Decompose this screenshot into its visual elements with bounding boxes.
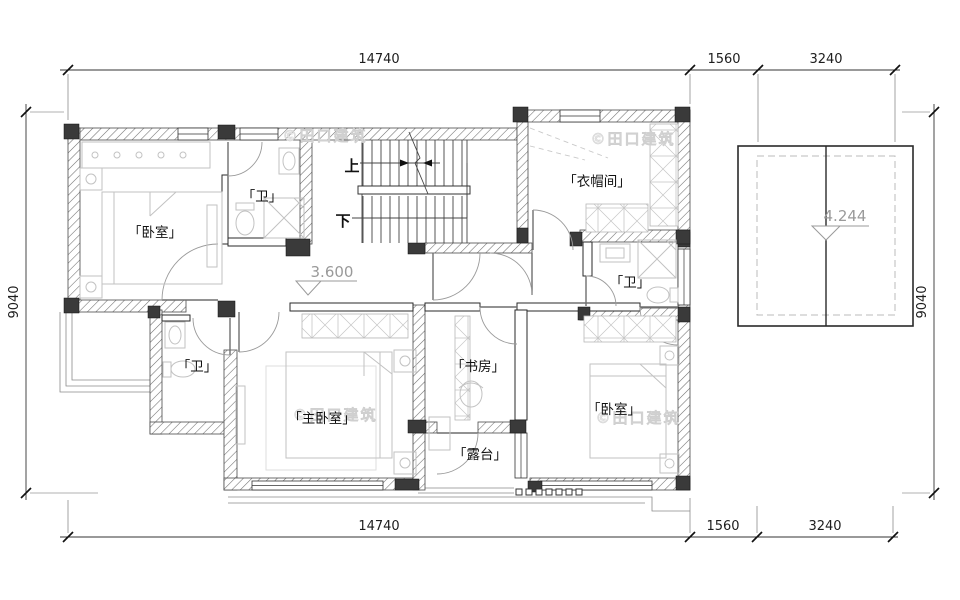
dim-left-9040: 9040 — [7, 285, 22, 318]
window — [240, 128, 278, 140]
stair-up-label: 上 — [344, 157, 359, 175]
dim-right-9040: 9040 — [915, 285, 930, 318]
window — [678, 249, 690, 305]
room-label-bedroom-bottom-right: 「卧室」 — [587, 401, 641, 418]
bedroom-top-left-furniture — [80, 142, 222, 298]
room-label-bedroom-top-left: 「卧室」 — [128, 224, 182, 241]
dim-top-3240: 3240 — [809, 52, 842, 67]
dim-bottom-14740: 14740 — [358, 519, 399, 534]
door — [193, 318, 230, 355]
door — [228, 142, 262, 176]
floor-elevation-value: 3.600 — [311, 263, 354, 281]
roof-elevation-value: 4.244 — [824, 207, 867, 225]
roof-plan: 4.244 — [738, 146, 913, 326]
room-label-study: 「书房」 — [451, 359, 505, 375]
floor-elevation-marker: 3.600 — [296, 263, 357, 295]
dim-top-1560: 1560 — [707, 52, 740, 67]
door — [239, 312, 279, 352]
window — [178, 128, 208, 140]
watermark-text: ©田口建筑 — [590, 130, 675, 148]
window — [560, 110, 600, 122]
watermark-text: ©田口建筑 — [282, 127, 367, 145]
dim-bottom-3240: 3240 — [808, 519, 841, 534]
stair-down-label: 下 — [335, 212, 350, 230]
door — [433, 253, 480, 300]
door — [162, 244, 218, 300]
room-label-cloakroom: 「衣帽间」 — [563, 174, 631, 190]
bath-right-fixtures — [600, 240, 678, 303]
exterior-walls — [68, 110, 690, 490]
master-bedroom-furniture — [236, 314, 416, 474]
dim-top-14740: 14740 — [358, 52, 399, 67]
window — [515, 433, 527, 478]
room-label-terrace: 「露台」 — [453, 447, 507, 463]
door — [490, 253, 532, 295]
window — [252, 481, 383, 490]
room-label-bath-left: 「卫」 — [177, 359, 218, 375]
door — [480, 307, 517, 344]
dim-bottom-1560: 1560 — [706, 519, 739, 534]
room-label-bath-top: 「卫」 — [242, 189, 283, 205]
floor-plan-drawing: 14740 1560 3240 14740 1560 3240 9040 904… — [0, 0, 960, 600]
room-label-bath-right: 「卫」 — [610, 275, 651, 291]
room-label-master-bedroom: 「主卧室」 — [288, 410, 356, 427]
floor-plan-page: 14740 1560 3240 14740 1560 3240 9040 904… — [0, 0, 960, 600]
staircase: 上 下 — [335, 132, 470, 243]
terrace-railing — [516, 489, 582, 495]
door — [533, 210, 573, 250]
bedroom-bottom-right-furniture — [584, 316, 679, 473]
stair-handrail — [358, 186, 470, 194]
